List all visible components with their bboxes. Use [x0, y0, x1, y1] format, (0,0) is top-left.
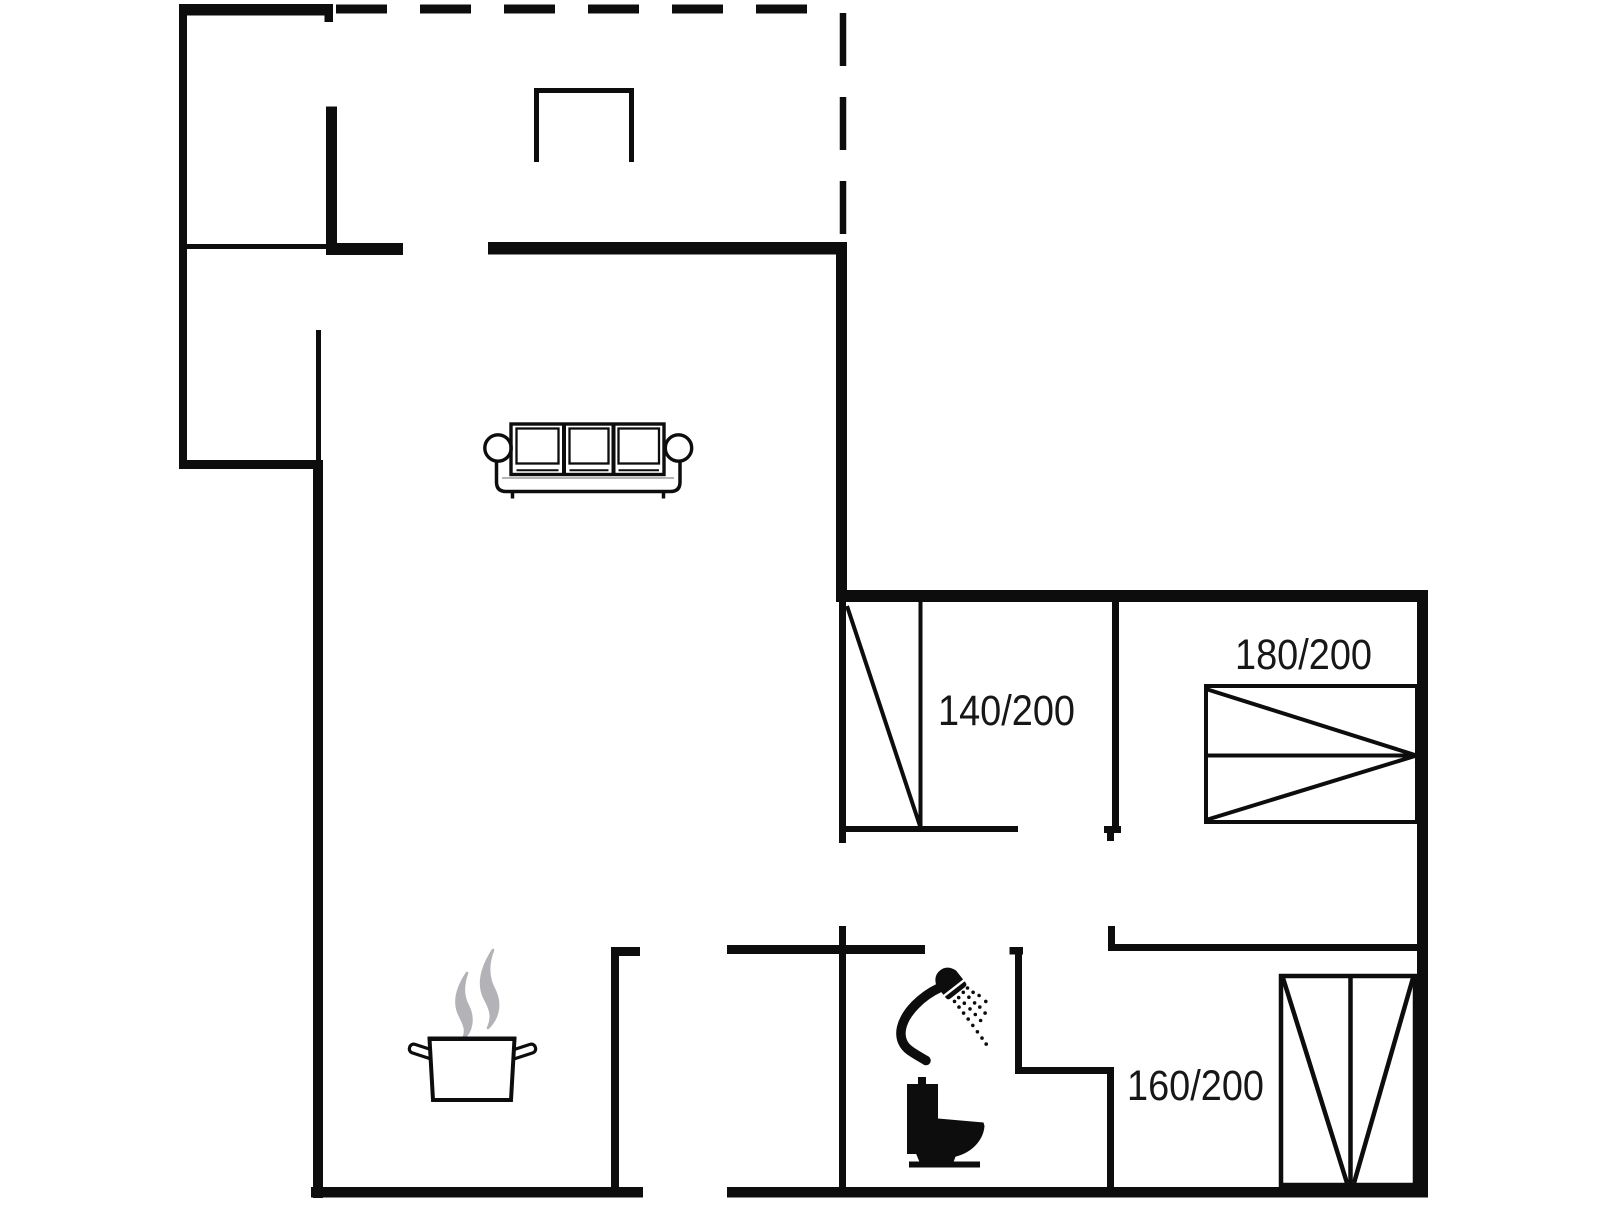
svg-text:180/200: 180/200	[1235, 631, 1372, 679]
svg-text:140/200: 140/200	[938, 687, 1075, 735]
svg-text:160/200: 160/200	[1127, 1062, 1264, 1110]
